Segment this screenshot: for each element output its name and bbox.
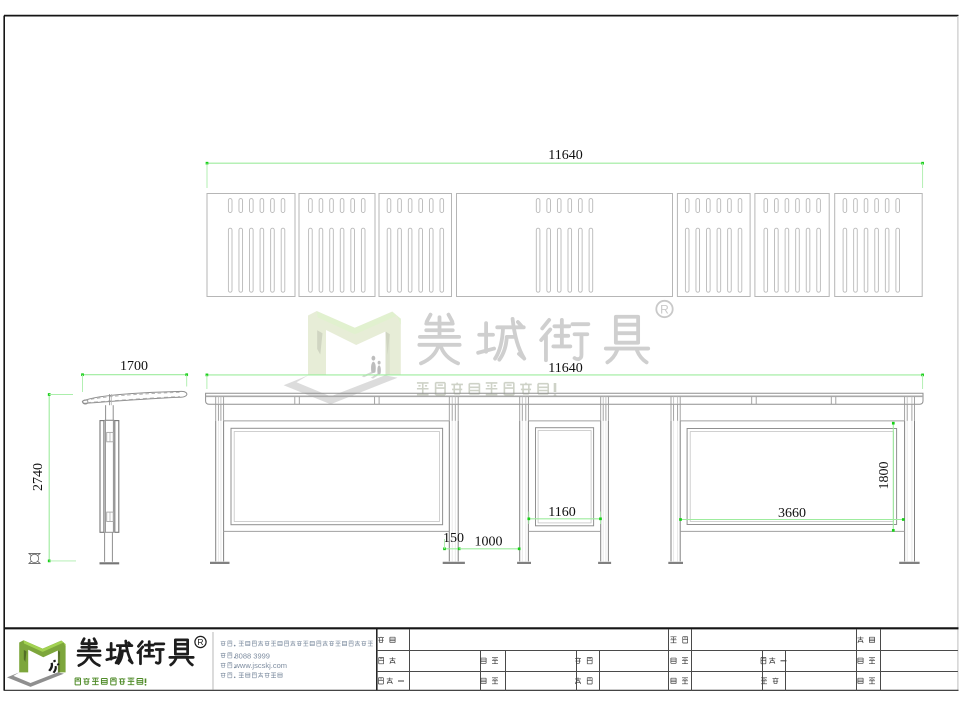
svg-text:8088 3999: 8088 3999 xyxy=(235,651,270,660)
svg-text:11640: 11640 xyxy=(548,148,582,163)
svg-text:1000: 1000 xyxy=(475,535,503,550)
svg-text:2740: 2740 xyxy=(31,463,46,491)
svg-text:R: R xyxy=(660,303,669,317)
svg-text:1160: 1160 xyxy=(548,505,575,520)
svg-text:www.jscskj.com: www.jscskj.com xyxy=(234,661,288,670)
svg-text:150: 150 xyxy=(443,531,464,546)
svg-text:11640: 11640 xyxy=(548,361,582,376)
svg-text:1700: 1700 xyxy=(120,359,148,374)
svg-text:1800: 1800 xyxy=(877,462,892,490)
svg-text:3660: 3660 xyxy=(778,506,806,521)
svg-text:R: R xyxy=(197,637,203,647)
